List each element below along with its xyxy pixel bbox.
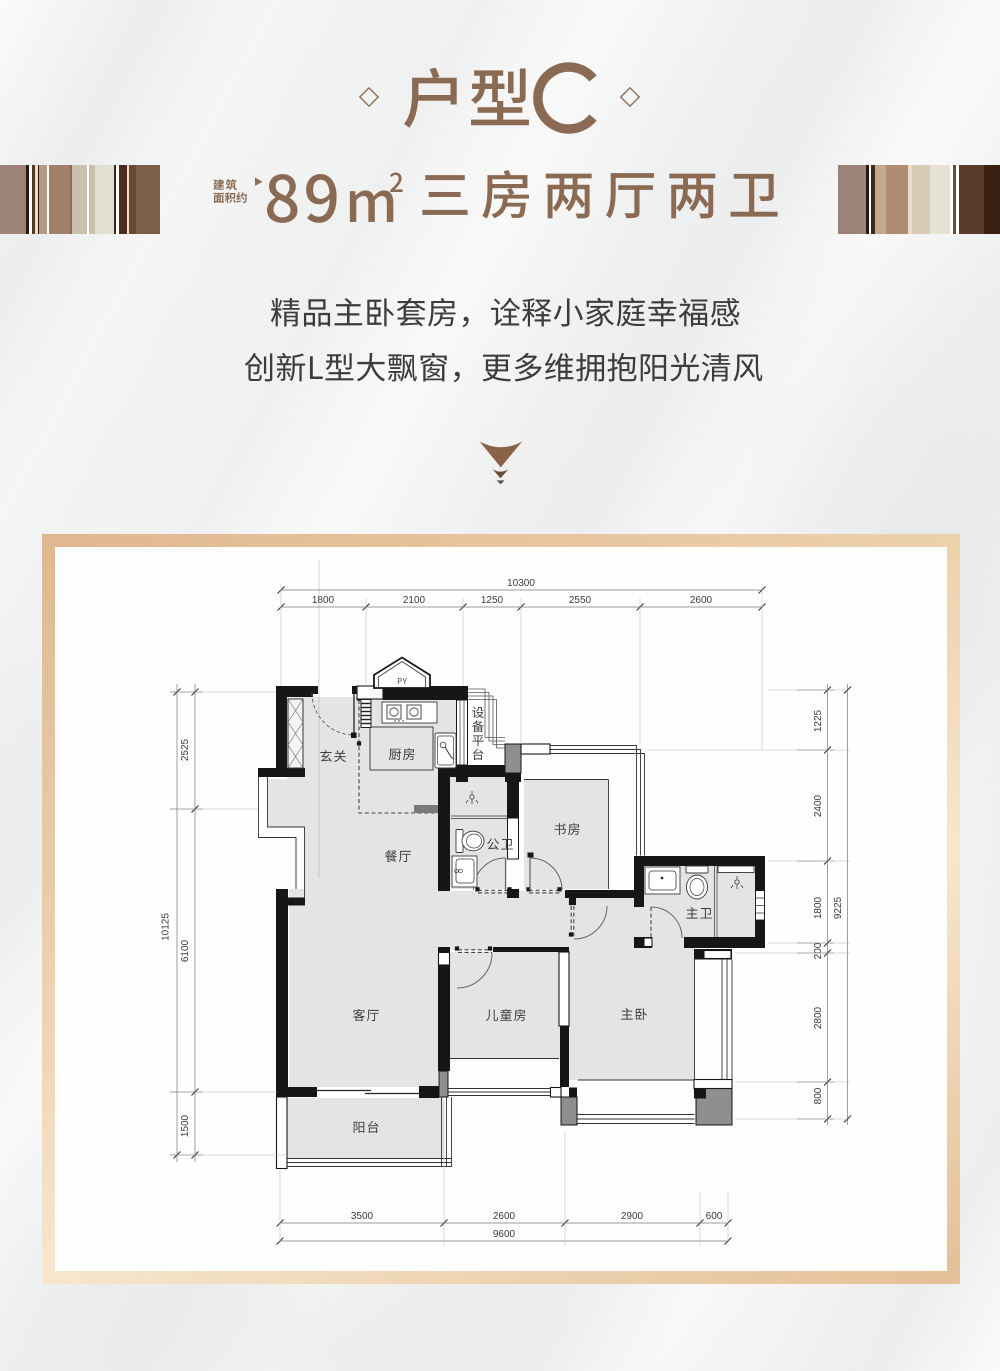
svg-text:10300: 10300 bbox=[507, 578, 535, 589]
svg-text:9600: 9600 bbox=[493, 1229, 516, 1240]
svg-text:1800: 1800 bbox=[813, 896, 824, 919]
svg-text:2100: 2100 bbox=[403, 595, 426, 606]
svg-text:9225: 9225 bbox=[833, 896, 844, 919]
svg-text:10125: 10125 bbox=[161, 913, 172, 941]
svg-text:2600: 2600 bbox=[493, 1211, 516, 1222]
svg-text:2800: 2800 bbox=[813, 1006, 824, 1029]
svg-text:2600: 2600 bbox=[690, 595, 713, 606]
svg-text:200: 200 bbox=[813, 942, 824, 959]
svg-text:2550: 2550 bbox=[569, 595, 592, 606]
svg-text:6100: 6100 bbox=[180, 939, 191, 962]
svg-text:1225: 1225 bbox=[813, 709, 824, 732]
svg-text:2400: 2400 bbox=[813, 794, 824, 817]
svg-text:3500: 3500 bbox=[351, 1211, 374, 1222]
svg-text:600: 600 bbox=[706, 1211, 723, 1222]
svg-text:1250: 1250 bbox=[481, 595, 504, 606]
svg-text:2525: 2525 bbox=[180, 738, 191, 761]
svg-text:1500: 1500 bbox=[180, 1114, 191, 1137]
svg-text:2900: 2900 bbox=[621, 1211, 644, 1222]
svg-text:1800: 1800 bbox=[312, 595, 335, 606]
svg-text:800: 800 bbox=[813, 1087, 824, 1104]
